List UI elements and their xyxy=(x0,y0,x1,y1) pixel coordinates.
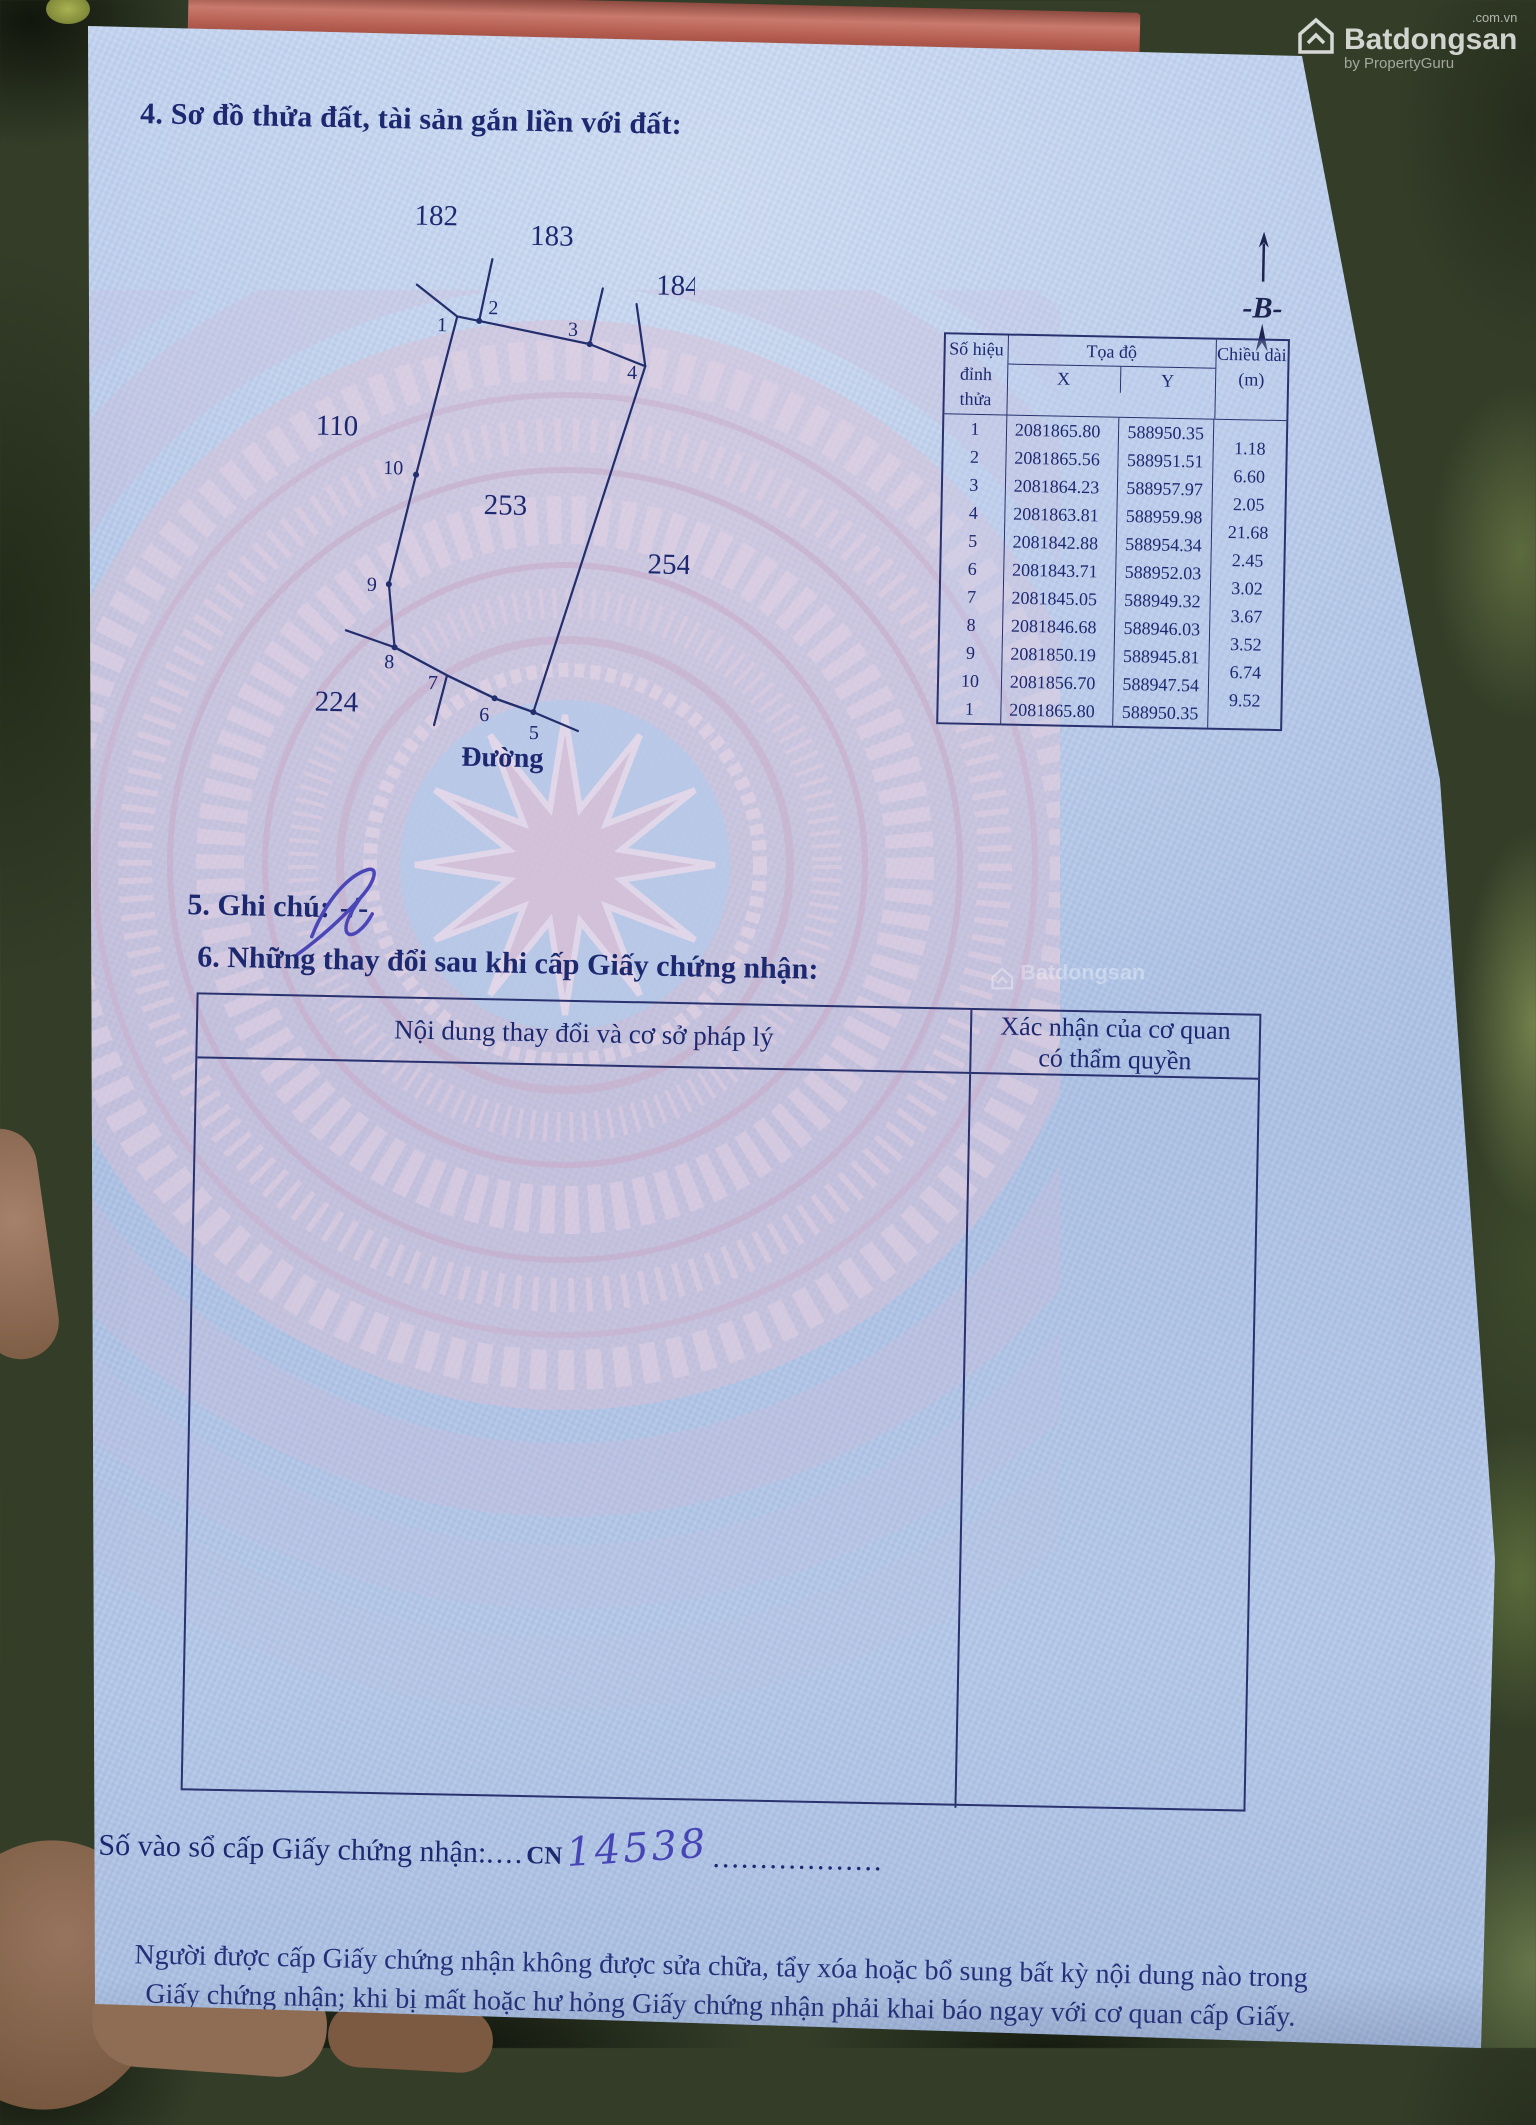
edge-length: 2.45 xyxy=(1211,546,1283,575)
coordinate-table-body: 1 2 3 4 5 6 7 8 9 10 1 2081865.80 208186… xyxy=(938,414,1286,729)
watermark-brand: Batdongsan xyxy=(1020,962,1145,984)
batdongsan-watermark-center: Batdongsan xyxy=(990,962,1145,991)
parcel-label: 182 xyxy=(414,200,458,233)
vertex-label: 6 xyxy=(479,704,489,726)
edge-length: 6.74 xyxy=(1209,658,1281,687)
parcel-label: 184 xyxy=(656,269,698,302)
vertex-label: 10 xyxy=(383,457,403,479)
coord-x: 2081865.56 xyxy=(1006,444,1118,474)
foliage-leaf xyxy=(46,0,90,24)
vertex-id: 10 xyxy=(939,666,1001,695)
vertex-label: 9 xyxy=(367,574,377,596)
coord-y: 588959.98 xyxy=(1118,502,1212,532)
vertex-label: 5 xyxy=(529,722,539,744)
coord-y: 588950.35 xyxy=(1114,698,1208,728)
edge-length: 21.68 xyxy=(1212,518,1284,547)
vertex-dot xyxy=(476,318,482,324)
coord-x: 2081846.68 xyxy=(1003,611,1115,641)
vertex-dot xyxy=(587,341,593,347)
vertex-label: 2 xyxy=(488,297,498,319)
vertex-id: 6 xyxy=(941,554,1003,583)
vertex-label: 4 xyxy=(627,362,637,384)
registry-prefix: CN xyxy=(526,1842,563,1870)
coord-x: 2081865.80 xyxy=(1001,695,1113,725)
edge-length: 3.52 xyxy=(1210,630,1282,659)
vertex-dot xyxy=(413,472,419,478)
vertex-coordinate-table: Số hiệu đỉnh thửa Tọa độ X Y Chiều dài (… xyxy=(936,332,1290,731)
vertex-id: 7 xyxy=(940,582,1002,611)
coord-x: 2081842.88 xyxy=(1004,528,1116,558)
vertex-id: 9 xyxy=(939,638,1001,667)
edge-length: 2.05 xyxy=(1213,490,1285,519)
edge-length: 9.52 xyxy=(1209,686,1281,715)
leader-dots: .... xyxy=(486,1836,525,1870)
changes-table: Nội dung thay đổi và cơ sở pháp lý Xác n… xyxy=(181,992,1262,1811)
changes-content-cell xyxy=(183,1058,972,1807)
watermark-brand: Batdongsan xyxy=(1344,25,1517,55)
batdongsan-logo-icon xyxy=(1296,16,1336,56)
watermark-byline: by PropertyGuru xyxy=(1344,55,1517,72)
certificate-page: 4. Sơ đồ thửa đất, tài sản gắn liền với … xyxy=(0,0,1536,2048)
coord-x: 2081856.70 xyxy=(1002,667,1114,697)
coord-x: 2081845.05 xyxy=(1003,583,1115,613)
vertex-label: 1 xyxy=(437,314,447,336)
vertex3-tick xyxy=(590,288,603,344)
coord-y: 588954.34 xyxy=(1117,530,1211,560)
y-header: Y xyxy=(1120,367,1215,395)
coord-y: 588952.03 xyxy=(1116,558,1210,588)
coord-x: 2081843.71 xyxy=(1004,555,1116,585)
registry-number-line: Số vào sổ cấp Giấy chứng nhận:....CN1453… xyxy=(98,1819,884,1881)
edge-length: 1.18 xyxy=(1214,434,1286,463)
coord-y: 588951.51 xyxy=(1119,446,1213,476)
edge-length: 3.67 xyxy=(1210,602,1282,631)
parcel-label: 110 xyxy=(315,410,358,443)
coord-x: 2081865.80 xyxy=(1007,416,1119,446)
coords-header: Tọa độ xyxy=(1008,336,1216,369)
coord-y: 588946.03 xyxy=(1115,614,1209,644)
compass-needle xyxy=(1263,244,1264,282)
length-header: Chiều dài (m) xyxy=(1215,340,1288,420)
coord-x: 2081850.19 xyxy=(1002,639,1114,669)
watermark-domain: .com.vn xyxy=(1344,10,1517,25)
vertex-id: 4 xyxy=(942,498,1004,527)
coord-y: 588945.81 xyxy=(1115,642,1209,672)
vertex-label: 7 xyxy=(428,672,438,694)
parcel-label: 224 xyxy=(314,686,359,719)
page-content: 4. Sơ đồ thửa đất, tài sản gắn liền với … xyxy=(0,0,1536,2077)
authority-confirm-header: Xác nhận của cơ quan có thẩm quyền xyxy=(971,1010,1259,1078)
registry-label: Số vào sổ cấp Giấy chứng nhận: xyxy=(98,1829,486,1870)
coord-x: 2081864.23 xyxy=(1005,472,1117,502)
north-letter: -B- xyxy=(1242,291,1283,325)
holding-finger xyxy=(0,1124,64,1364)
coord-y: 588947.54 xyxy=(1114,670,1208,700)
x-header: X xyxy=(1007,365,1120,393)
parcel-label: 253 xyxy=(483,489,527,522)
edge-length: 3.02 xyxy=(1211,574,1283,603)
section4-title: 4. Sơ đồ thửa đất, tài sản gắn liền với … xyxy=(140,97,682,142)
vertex-id: 8 xyxy=(940,610,1002,639)
neighbor-boundary-line xyxy=(416,285,458,317)
road-label: Đường xyxy=(461,742,544,775)
batdongsan-watermark: .com.vn Batdongsan by PropertyGuru xyxy=(1296,10,1517,72)
vertex-dot xyxy=(386,581,392,587)
vertex4-tick xyxy=(635,304,646,366)
vertex-id: 5 xyxy=(942,526,1004,555)
coord-y: 588950.35 xyxy=(1119,418,1213,448)
vertex-id: 3 xyxy=(943,470,1005,499)
vertex-id: 1 xyxy=(938,694,1000,723)
section6-title: 6. Những thay đổi sau khi cấp Giấy chứng… xyxy=(197,940,819,986)
parcel-label: 183 xyxy=(530,220,574,253)
coord-x: 2081863.81 xyxy=(1005,500,1117,530)
batdongsan-logo-icon xyxy=(990,966,1014,990)
leader-dots: .................. xyxy=(712,1841,884,1877)
coord-y: 588949.32 xyxy=(1116,586,1210,616)
vertex-id-header: Số hiệu đỉnh thửa xyxy=(944,334,1008,414)
coordinate-table-header: Số hiệu đỉnh thửa Tọa độ X Y Chiều dài (… xyxy=(944,334,1288,421)
vertex-id: 1 xyxy=(944,414,1006,443)
vertex-id: 2 xyxy=(943,442,1005,471)
edge-length: 6.60 xyxy=(1213,462,1285,491)
parcel-label: 254 xyxy=(647,548,692,581)
vertex-label: 8 xyxy=(384,651,394,673)
vertex-label: 3 xyxy=(568,319,578,341)
vertex-dot xyxy=(530,709,536,715)
coord-y: 588957.97 xyxy=(1118,474,1212,504)
registry-number-handwritten: 14538 xyxy=(565,1821,710,1876)
plot-diagram: 1 2 3 4 5 6 7 8 9 10 182 183 184 110 253… xyxy=(124,139,697,810)
